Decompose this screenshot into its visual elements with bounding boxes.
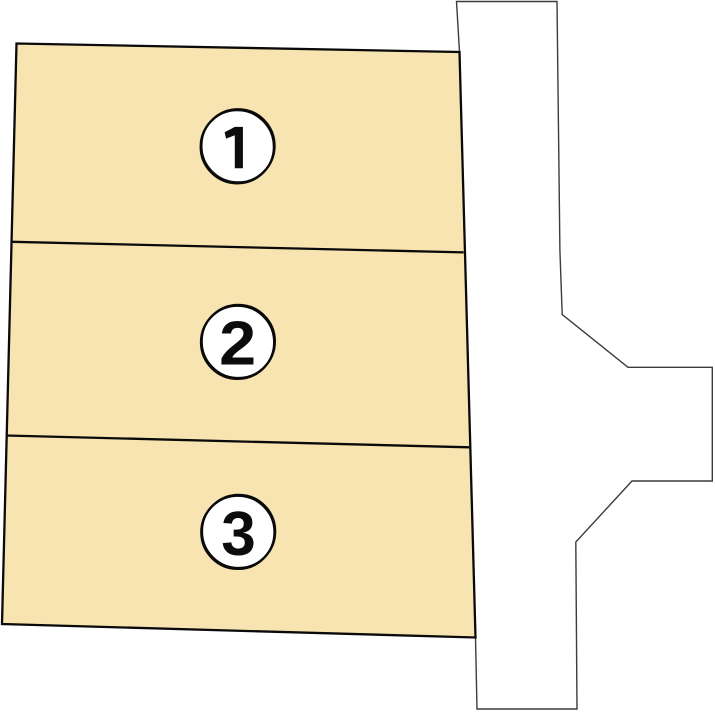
svg-text:3: 3 xyxy=(221,500,255,569)
svg-text:2: 2 xyxy=(219,309,256,378)
